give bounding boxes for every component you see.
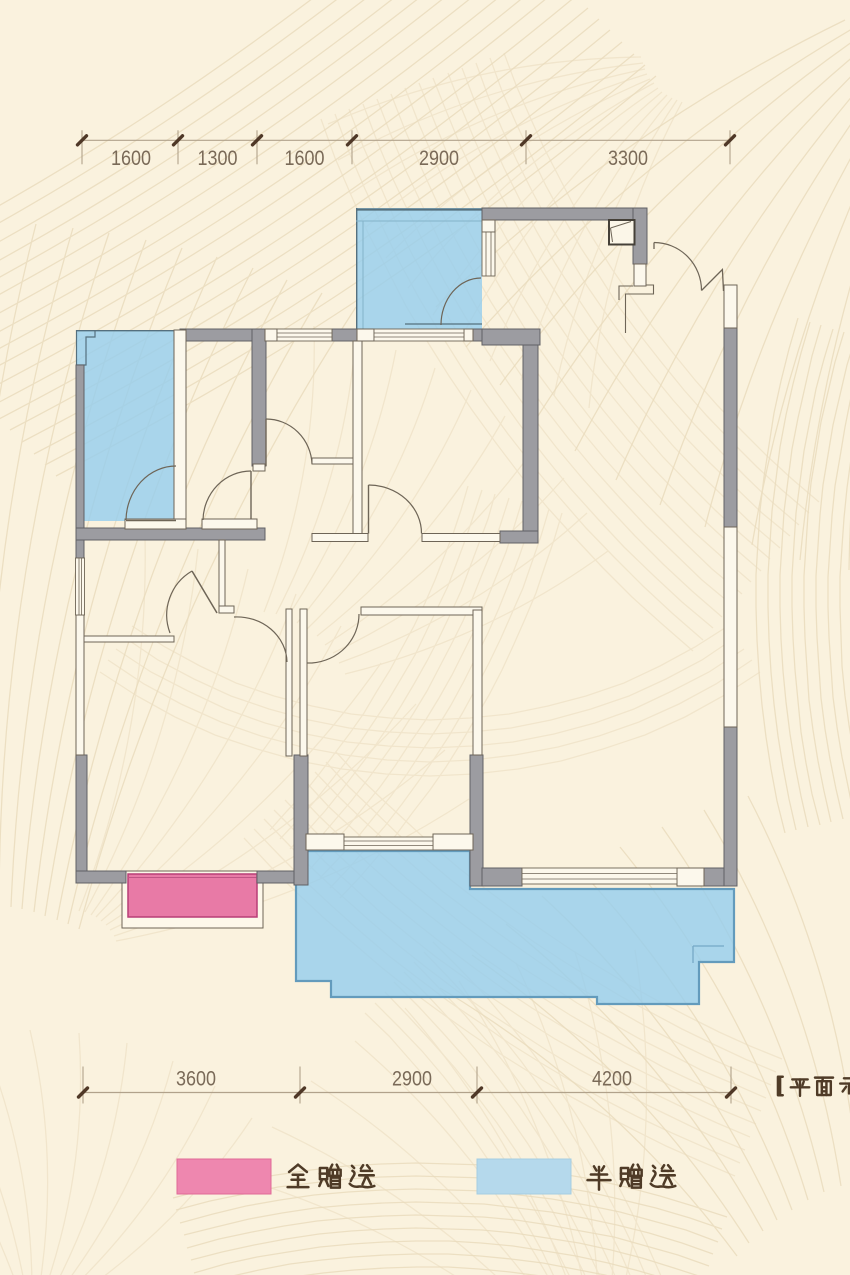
- svg-text:1600: 1600: [111, 146, 151, 170]
- svg-text:1600: 1600: [285, 146, 325, 170]
- svg-text:1300: 1300: [198, 146, 238, 170]
- svg-text:3600: 3600: [176, 1067, 216, 1091]
- svg-text:2900: 2900: [392, 1067, 432, 1091]
- svg-text:3300: 3300: [608, 146, 648, 170]
- svg-text:2900: 2900: [419, 146, 459, 170]
- svg-text:4200: 4200: [592, 1067, 632, 1091]
